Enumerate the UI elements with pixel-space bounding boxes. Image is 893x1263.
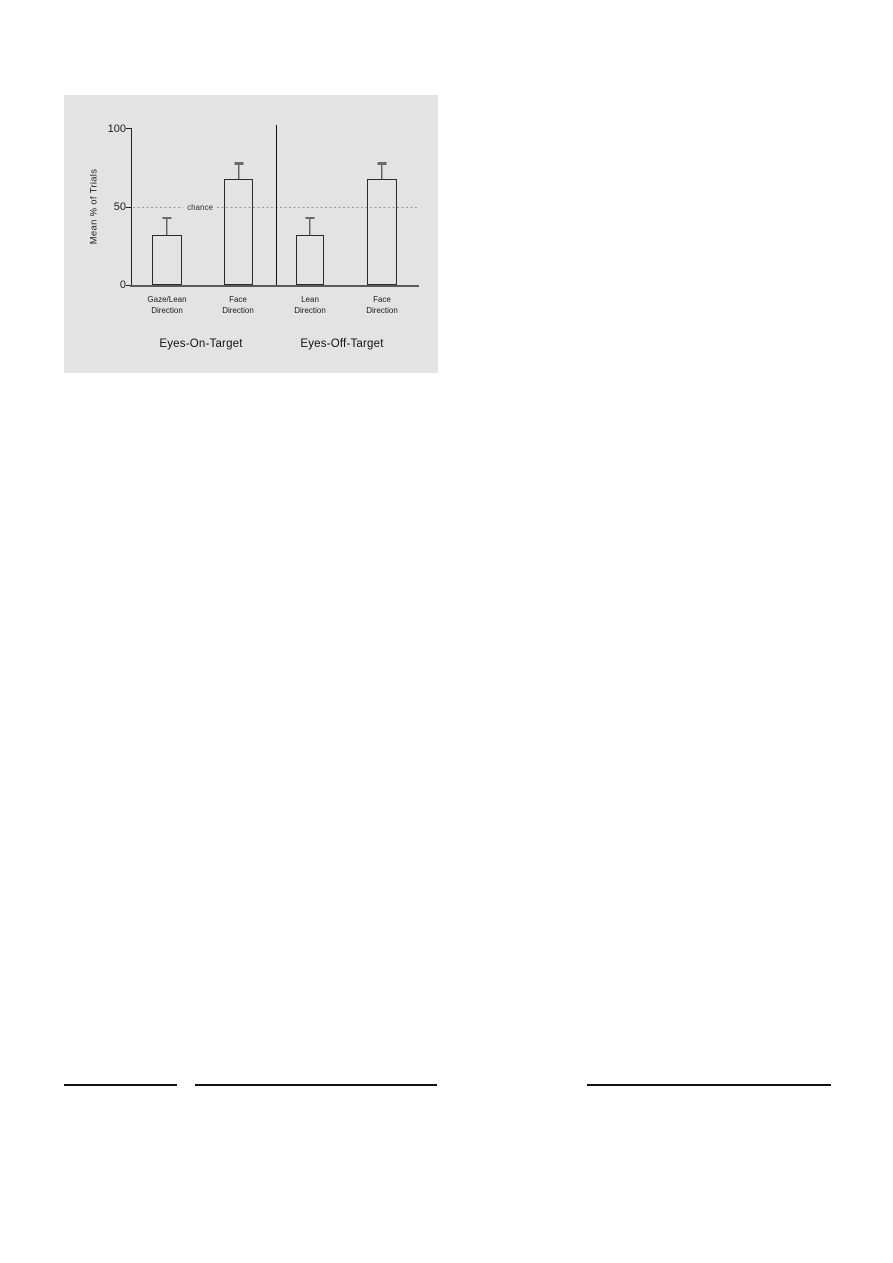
error-bar-line [381,163,382,179]
bar-rect [224,179,253,285]
x-tick-label-lean: Lean Direction [275,294,345,316]
document-page: Mean % of Trials 100 50 0 chance [0,0,893,1263]
y-tick-label-50: 50 [96,201,126,213]
error-bar-line [309,218,310,235]
x-tick-label-face-off: Face Direction [347,294,417,316]
x-tick-label-line: Direction [203,305,273,316]
bar-rect [367,179,397,285]
x-tick-label-line: Direction [347,305,417,316]
error-bar-cap [378,162,387,165]
y-axis-tick-100 [126,128,132,129]
group-label-eyes-on-target: Eyes-On-Target [136,338,266,350]
error-bar-line [238,163,239,179]
x-tick-label-line: Face [203,294,273,305]
y-tick-label-100: 100 [96,123,126,135]
x-tick-label-face-on: Face Direction [203,294,273,316]
bar-rect [296,235,324,285]
error-bar-cap [306,217,315,220]
x-tick-label-line: Gaze/Lean [132,294,202,305]
x-tick-label-line: Face [347,294,417,305]
x-tick-label-line: Direction [275,305,345,316]
error-bar-line [166,218,167,235]
error-bar-cap [234,162,243,165]
chance-reference-line-left-segment [133,207,183,208]
footnote-rule-center [195,1084,437,1086]
x-tick-label-line: Lean [275,294,345,305]
bar-rect [152,235,182,285]
error-bar-cap [163,217,172,220]
x-tick-label-gaze-lean: Gaze/Lean Direction [132,294,202,316]
x-tick-label-line: Direction [132,305,202,316]
chance-line-label: chance [182,202,218,213]
panel-divider-line [276,125,278,285]
y-axis-tick-50 [126,207,132,208]
footnote-rule-right [587,1084,831,1086]
figure-panel: Mean % of Trials 100 50 0 chance [64,95,438,373]
y-tick-label-0: 0 [96,279,126,291]
group-label-eyes-off-target: Eyes-Off-Target [277,338,407,350]
footnote-rule-left [64,1084,177,1086]
